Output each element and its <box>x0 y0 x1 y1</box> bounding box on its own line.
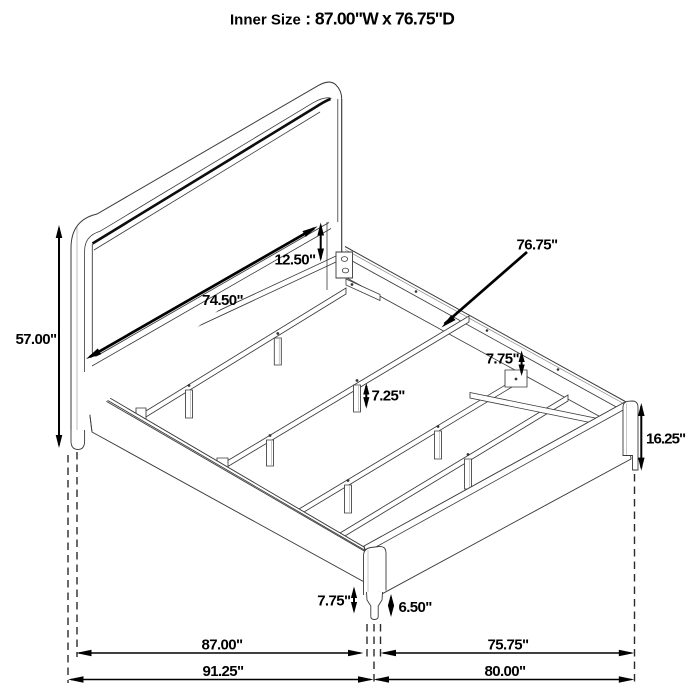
svg-text:6.50": 6.50" <box>399 599 433 616</box>
svg-text:87.00": 87.00" <box>201 637 243 654</box>
svg-text:75.75": 75.75" <box>487 637 529 654</box>
svg-text:7.75": 7.75" <box>317 593 351 610</box>
svg-text:74.50": 74.50" <box>202 292 244 309</box>
svg-text:16.25": 16.25" <box>646 431 686 448</box>
svg-text:7.25": 7.25" <box>372 387 406 404</box>
svg-text:80.00": 80.00" <box>484 663 526 680</box>
svg-text:12.50": 12.50" <box>274 252 316 269</box>
svg-text:91.25": 91.25" <box>202 663 244 680</box>
svg-text:7.75": 7.75" <box>486 351 520 368</box>
svg-text:Inner Size : 87.00"W x 76.75"D: Inner Size : 87.00"W x 76.75"D <box>230 9 454 29</box>
svg-text:57.00": 57.00" <box>15 331 57 348</box>
svg-text:76.75": 76.75" <box>517 236 559 253</box>
